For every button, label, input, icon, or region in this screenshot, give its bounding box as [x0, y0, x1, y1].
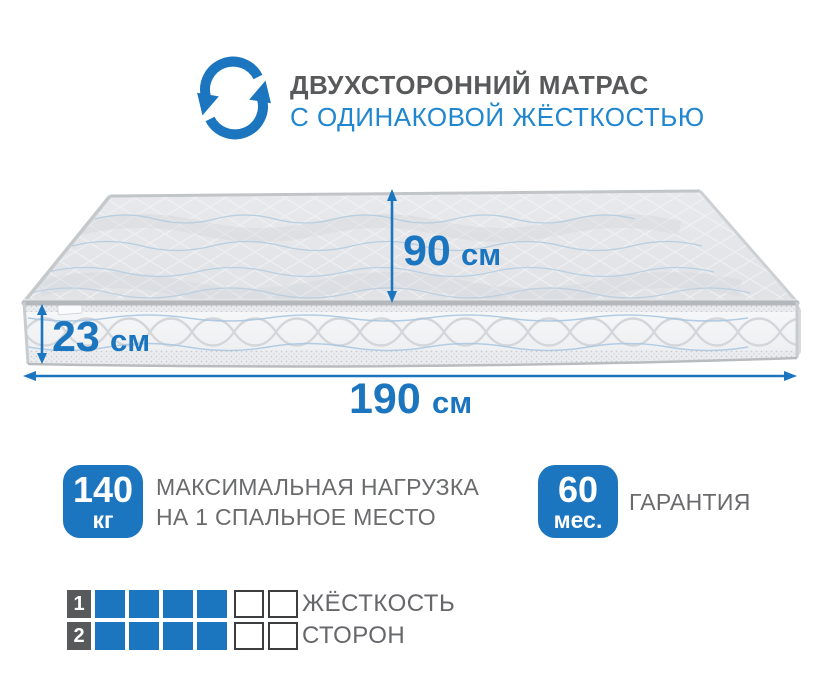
firmness-cell-filled — [129, 590, 159, 618]
max-load-value: 140 — [73, 472, 133, 508]
warranty-value: 60 — [558, 472, 598, 508]
firmness-cell-empty — [268, 590, 298, 618]
firmness-cell-filled — [95, 622, 125, 650]
height-value: 23 — [52, 313, 100, 361]
length-value: 190 — [349, 375, 421, 423]
depth-value: 90 — [403, 227, 451, 275]
height-unit: см — [110, 323, 150, 358]
firmness-cell-empty — [234, 590, 264, 618]
firmness-cell-empty — [268, 622, 298, 650]
firmness-cell-filled — [197, 590, 227, 618]
warranty-label: ГАРАНТИЯ — [629, 465, 751, 538]
mattress-infographic: ДВУХСТОРОННИЙ МАТРАС С ОДИНАКОВОЙ ЖЁСТКО… — [0, 0, 816, 700]
length-unit: см — [432, 385, 472, 420]
firmness-cell-filled — [129, 622, 159, 650]
firmness-cell-filled — [163, 622, 193, 650]
firmness-row: 1 — [67, 590, 298, 618]
firmness-cell-filled — [197, 622, 227, 650]
firmness-cell-filled — [163, 590, 193, 618]
side-number: 2 — [67, 622, 91, 650]
firmness-cell-empty — [234, 622, 264, 650]
max-load-unit: кг — [92, 508, 113, 532]
warranty-unit: мес. — [554, 508, 603, 532]
firmness-row: 2 — [67, 622, 298, 650]
max-load-label: МАКСИМАЛЬНАЯ НАГРУЗКА НА 1 СПАЛЬНОЕ МЕСТ… — [156, 465, 479, 538]
firmness-scale: 12 — [67, 590, 298, 654]
side-number: 1 — [67, 590, 91, 618]
max-load-badge: 140 кг — [63, 465, 143, 538]
firmness-label: ЖЁСТКОСТЬ СТОРОН — [302, 590, 455, 650]
warranty-badge: 60 мес. — [538, 465, 618, 538]
firmness-cell-filled — [95, 590, 125, 618]
depth-unit: см — [461, 237, 501, 272]
